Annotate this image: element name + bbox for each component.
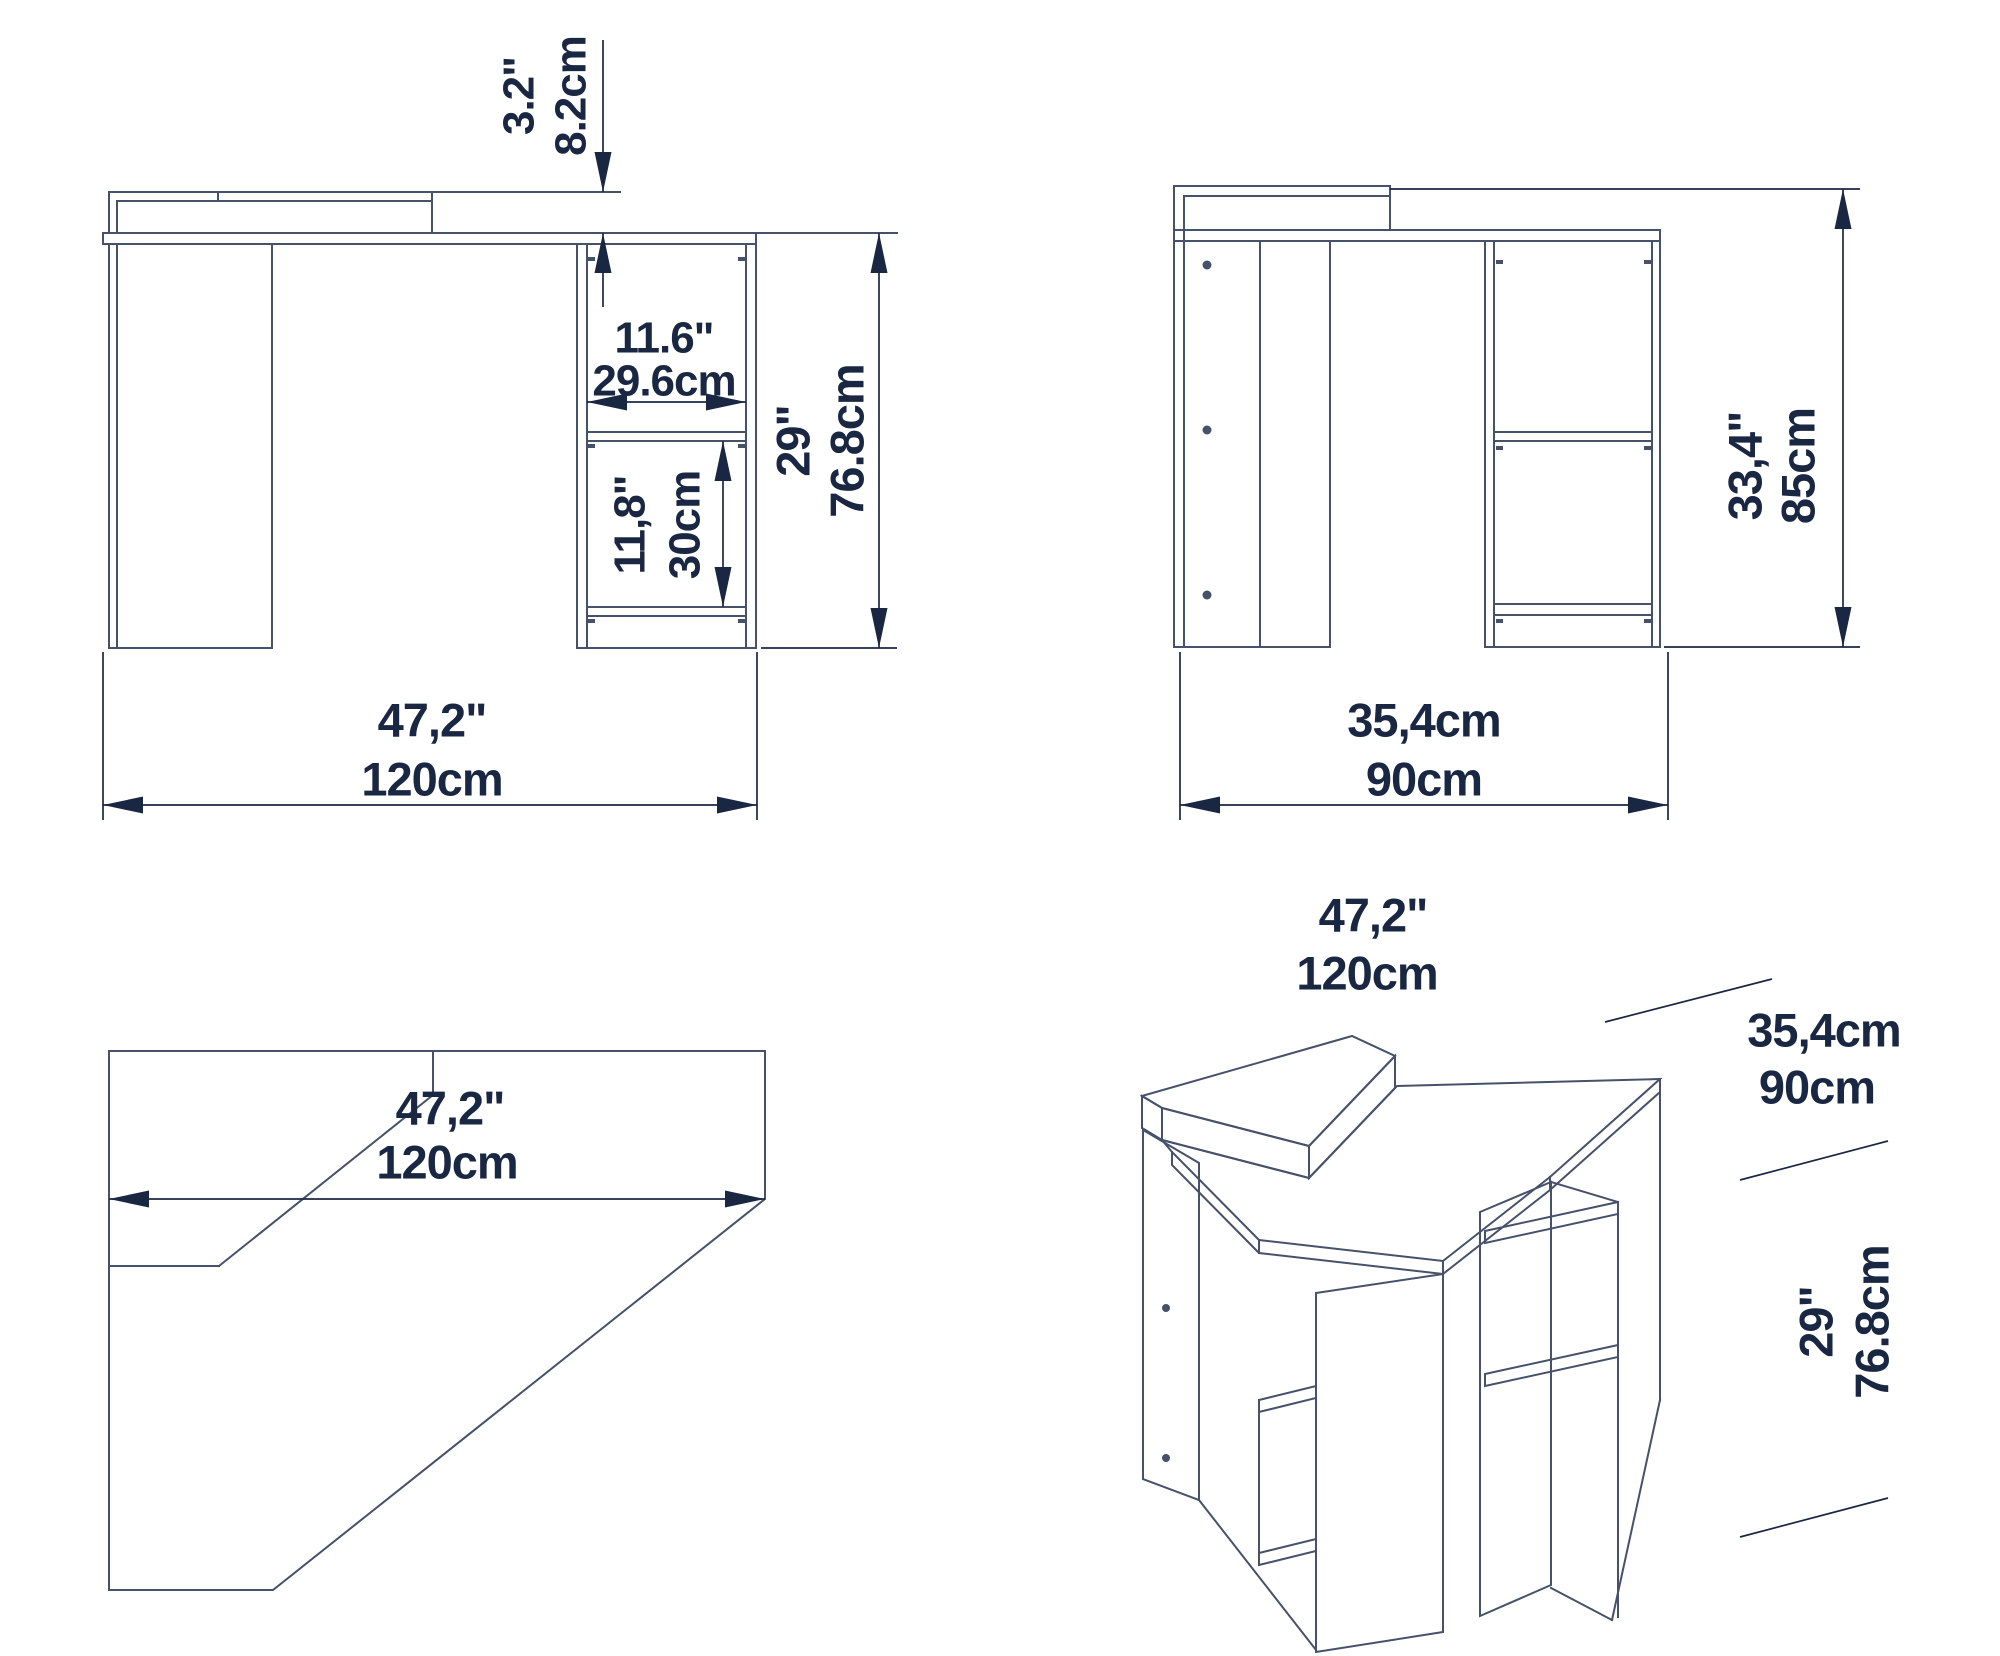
iso-depth-label-cm: 90cm bbox=[1759, 1060, 1875, 1113]
front-width-dimension: 47,2" 120cm bbox=[103, 652, 757, 820]
front-niche-height-dimension: 11,8" 30cm bbox=[606, 441, 732, 607]
front-view: 3.2" 8.2cm 11.6" 29.6cm 11,8" 30cm 29" 7 bbox=[103, 36, 897, 820]
isometric-view: 47,2" 120cm 35,4cm 90cm 29" 76.8cm bbox=[1142, 888, 1901, 1652]
technical-drawing: 3.2" 8.2cm 11.6" 29.6cm 11,8" 30cm 29" 7 bbox=[0, 0, 2000, 1656]
side-height-label-cm: 85cm bbox=[1771, 408, 1824, 524]
front-niche-width-label-cm: 29.6cm bbox=[592, 357, 735, 406]
front-height-label-cm: 76.8cm bbox=[820, 364, 873, 517]
front-shelf-height-dimension: 3.2" 8.2cm bbox=[495, 36, 612, 307]
front-niche-width-label-in: 11.6" bbox=[614, 314, 713, 363]
drawing-canvas: 3.2" 8.2cm 11.6" 29.6cm 11,8" 30cm 29" 7 bbox=[0, 0, 2000, 1656]
top-width-label-in: 47,2" bbox=[396, 1081, 505, 1134]
side-view: 33,4" 85cm 35,4cm 90cm bbox=[1174, 186, 1860, 820]
iso-depth-label-in: 35,4cm bbox=[1747, 1003, 1900, 1056]
iso-height-label-cm: 76.8cm bbox=[1845, 1245, 1898, 1398]
front-niche-height-label-in: 11,8" bbox=[606, 475, 655, 574]
side-depth-label-in: 35,4cm bbox=[1347, 693, 1500, 746]
side-height-label-in: 33,4" bbox=[1718, 412, 1771, 521]
top-view: 47,2" 120cm bbox=[109, 1051, 765, 1590]
iso-width-label-in: 47,2" bbox=[1319, 888, 1428, 941]
side-depth-dimension: 35,4cm 90cm bbox=[1180, 652, 1668, 820]
front-width-label-in: 47,2" bbox=[378, 693, 487, 746]
top-width-label-cm: 120cm bbox=[376, 1135, 517, 1188]
front-shelf-height-label-cm: 8.2cm bbox=[547, 36, 596, 156]
front-shelf-height-label-in: 3.2" bbox=[495, 57, 544, 135]
side-depth-label-cm: 90cm bbox=[1366, 752, 1482, 805]
front-height-dimension: 29" 76.8cm bbox=[761, 233, 897, 648]
front-height-label-in: 29" bbox=[766, 405, 819, 477]
iso-height-label-in: 29" bbox=[1789, 1286, 1842, 1358]
iso-width-label-cm: 120cm bbox=[1296, 946, 1437, 999]
top-width-dimension: 47,2" 120cm bbox=[109, 1081, 765, 1207]
front-niche-height-label-cm: 30cm bbox=[661, 471, 710, 580]
front-width-label-cm: 120cm bbox=[361, 752, 502, 805]
front-niche-width-dimension: 11.6" 29.6cm bbox=[587, 314, 746, 411]
side-height-dimension: 33,4" 85cm bbox=[1390, 189, 1860, 647]
